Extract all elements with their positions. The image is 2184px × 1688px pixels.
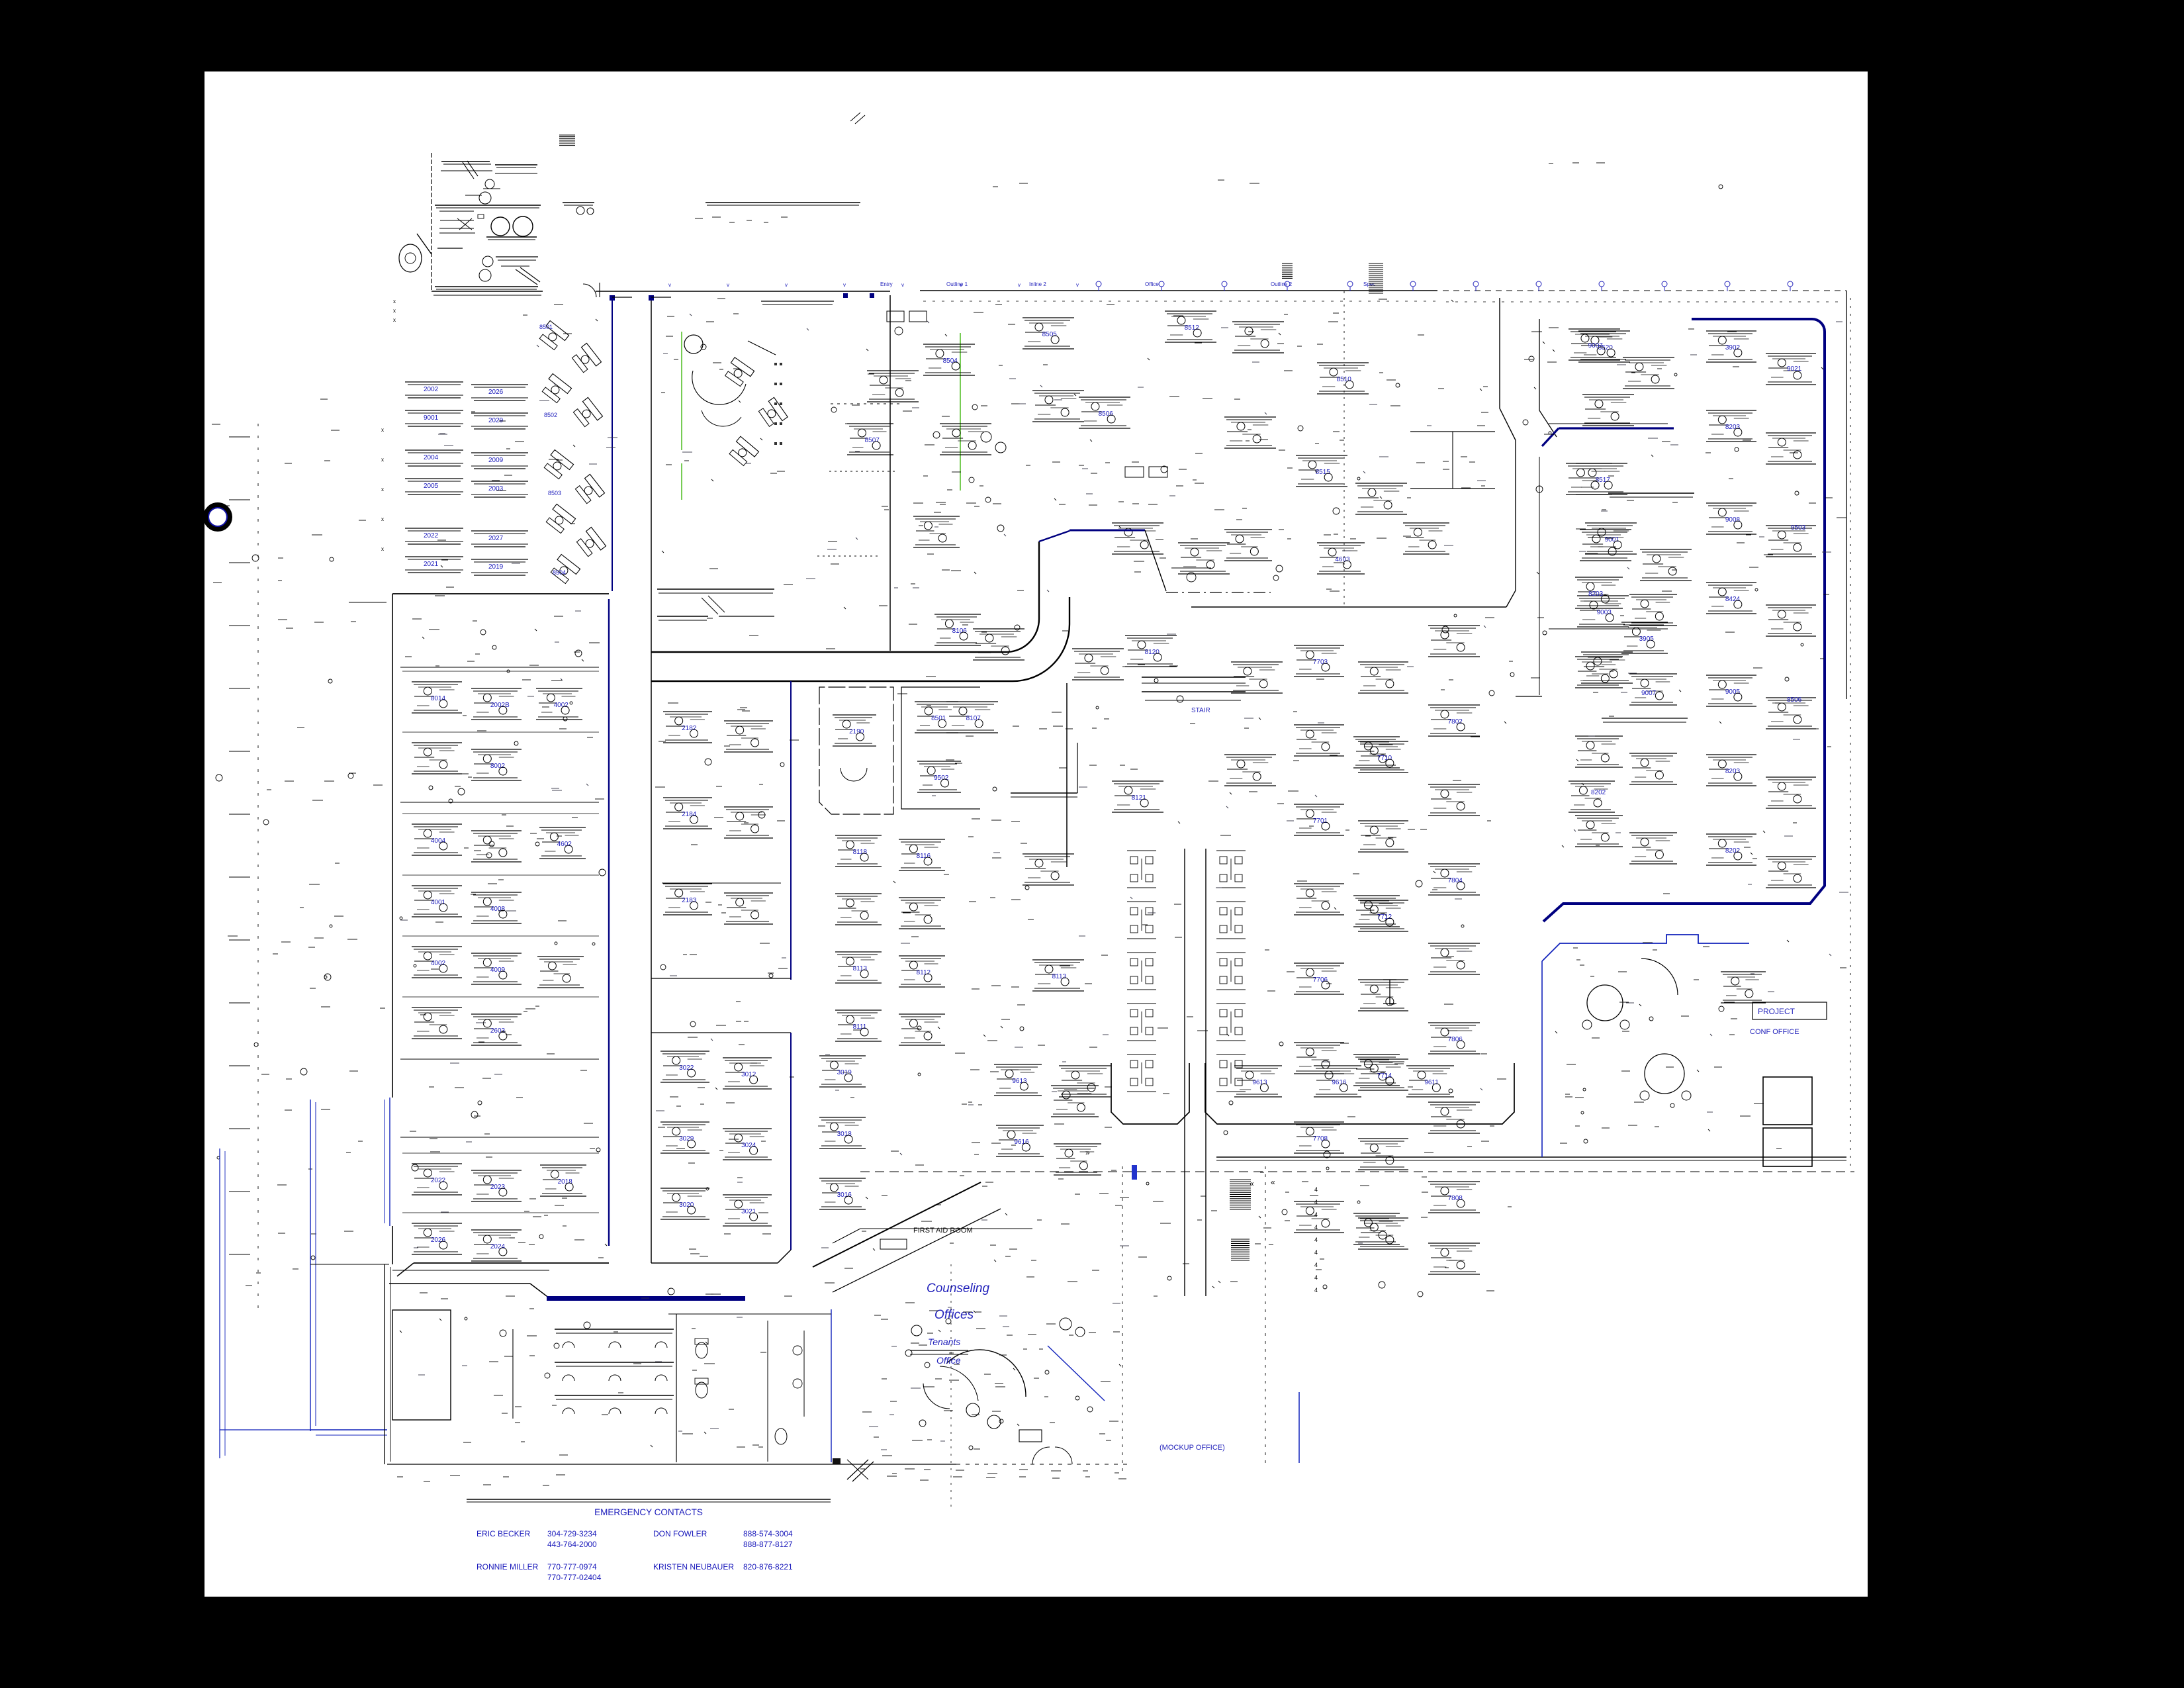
svg-text:Inline 2: Inline 2	[1029, 281, 1046, 287]
svg-text:304-729-3234: 304-729-3234	[547, 1529, 597, 1538]
svg-text:2029: 2029	[488, 417, 504, 424]
svg-text:3902: 3902	[1725, 344, 1741, 352]
svg-text:4: 4	[1314, 1237, 1318, 1243]
svg-text:Outline 2: Outline 2	[1271, 281, 1293, 287]
svg-text:4: 4	[1314, 1249, 1318, 1256]
svg-text:v: v	[843, 282, 846, 288]
svg-text:2009: 2009	[488, 457, 504, 464]
svg-text:9613: 9613	[1012, 1078, 1027, 1085]
svg-text:3020: 3020	[679, 1201, 694, 1209]
svg-text:9613: 9613	[1252, 1079, 1267, 1086]
svg-text:4: 4	[1314, 1224, 1318, 1231]
svg-text:4008: 4008	[490, 906, 506, 913]
svg-text:8505: 8505	[1042, 331, 1058, 338]
svg-text:«: «	[1250, 1179, 1254, 1188]
svg-text:2003: 2003	[488, 485, 504, 492]
svg-text:x: x	[381, 516, 384, 522]
svg-text:STAIR: STAIR	[1191, 707, 1210, 714]
svg-text:4602: 4602	[557, 841, 572, 848]
svg-text:8512: 8512	[1185, 324, 1200, 332]
svg-text:2018: 2018	[558, 1178, 573, 1186]
svg-text:4: 4	[1314, 1262, 1318, 1268]
svg-text:8507: 8507	[865, 437, 880, 444]
svg-text:3029: 3029	[679, 1135, 694, 1143]
svg-text:7703: 7703	[1313, 659, 1328, 666]
svg-text:8107: 8107	[966, 715, 981, 722]
svg-text:9003: 9003	[1597, 609, 1612, 616]
svg-text:8106: 8106	[952, 628, 968, 635]
svg-text:»: »	[1085, 1148, 1090, 1157]
svg-text:4: 4	[1314, 1287, 1318, 1293]
svg-text:8112: 8112	[917, 969, 931, 976]
svg-text:CONF OFFICE: CONF OFFICE	[1750, 1028, 1799, 1036]
svg-text:Tenants: Tenants	[928, 1336, 960, 1347]
svg-text:x: x	[381, 487, 384, 492]
svg-text:7804: 7804	[1448, 877, 1463, 884]
svg-text:x: x	[381, 546, 384, 552]
svg-text:3021: 3021	[741, 1208, 756, 1215]
svg-text:3018: 3018	[837, 1131, 852, 1138]
svg-text:Spec: Spec	[1363, 281, 1375, 287]
svg-text:2184: 2184	[682, 811, 697, 818]
svg-text:v: v	[901, 282, 904, 288]
svg-text:9001: 9001	[1605, 536, 1620, 543]
svg-text:8121: 8121	[1132, 794, 1147, 802]
svg-text:2183: 2183	[682, 897, 697, 904]
svg-text:(MOCKUP OFFICE): (MOCKUP OFFICE)	[1160, 1444, 1225, 1452]
svg-text:2004: 2004	[424, 454, 439, 461]
svg-text:2026: 2026	[431, 1237, 446, 1244]
svg-text:7706: 7706	[1313, 976, 1328, 984]
svg-text:820-876-8221: 820-876-8221	[743, 1562, 793, 1571]
svg-text:7802: 7802	[1448, 718, 1463, 726]
svg-text:7714: 7714	[1377, 1072, 1392, 1080]
svg-text:2019: 2019	[488, 563, 504, 571]
svg-text:888-574-3004: 888-574-3004	[743, 1529, 793, 1538]
svg-text:3022: 3022	[679, 1064, 694, 1072]
svg-text:9007: 9007	[1588, 342, 1604, 350]
svg-text:Entry: Entry	[880, 281, 893, 287]
svg-text:8203: 8203	[1725, 768, 1741, 775]
svg-text:770-777-0974: 770-777-0974	[547, 1562, 597, 1571]
svg-text:8517: 8517	[1596, 477, 1611, 484]
svg-text:8113: 8113	[853, 965, 868, 972]
svg-text:8202: 8202	[1591, 789, 1606, 796]
svg-text:x: x	[393, 308, 396, 314]
svg-text:9005: 9005	[1725, 688, 1741, 696]
svg-text:Office: Office	[1145, 281, 1159, 287]
svg-text:8501: 8501	[539, 324, 553, 330]
svg-text:ERIC BECKER: ERIC BECKER	[477, 1529, 531, 1538]
svg-text:7708: 7708	[1313, 1135, 1328, 1143]
svg-text:9021: 9021	[1787, 365, 1802, 373]
svg-text:Offices: Offices	[934, 1308, 974, 1322]
svg-text:2002: 2002	[424, 386, 439, 393]
svg-text:8502: 8502	[544, 412, 557, 418]
svg-text:4: 4	[1314, 1211, 1318, 1218]
svg-text:8118: 8118	[853, 849, 868, 856]
svg-text:4603: 4603	[1335, 556, 1350, 563]
svg-text:Office: Office	[936, 1355, 961, 1366]
svg-text:8503: 8503	[548, 490, 561, 496]
svg-text:v: v	[1018, 282, 1021, 288]
svg-text:8203: 8203	[1588, 590, 1604, 598]
svg-text:8504: 8504	[943, 357, 958, 365]
svg-text:770-777-02404: 770-777-02404	[547, 1573, 602, 1582]
svg-text:7808: 7808	[1448, 1195, 1463, 1202]
svg-text:Counseling: Counseling	[927, 1282, 989, 1295]
svg-text:8504: 8504	[553, 569, 566, 576]
svg-text:9616: 9616	[1014, 1139, 1029, 1146]
svg-text:7710: 7710	[1377, 755, 1392, 762]
svg-text:8510: 8510	[1337, 376, 1352, 383]
svg-text:v: v	[785, 282, 788, 288]
svg-text:8002: 8002	[490, 763, 506, 770]
svg-text:x: x	[393, 317, 396, 323]
svg-text:2022: 2022	[431, 1177, 446, 1184]
svg-text:EMERGENCY CONTACTS: EMERGENCY CONTACTS	[594, 1507, 703, 1517]
svg-text:2023: 2023	[490, 1184, 506, 1191]
svg-text:9616: 9616	[1332, 1079, 1347, 1086]
svg-text:4: 4	[1314, 1186, 1318, 1193]
svg-text:2021: 2021	[424, 561, 439, 568]
svg-text:443-764-2000: 443-764-2000	[547, 1540, 597, 1549]
svg-text:8116: 8116	[917, 853, 931, 860]
svg-text:8113: 8113	[1052, 973, 1067, 980]
svg-text:RONNIE MILLER: RONNIE MILLER	[477, 1562, 539, 1571]
svg-text:v: v	[1076, 282, 1079, 288]
svg-text:x: x	[393, 299, 396, 305]
svg-text:DON FOWLER: DON FOWLER	[653, 1529, 707, 1538]
svg-text:4: 4	[1314, 1274, 1318, 1281]
svg-text:2026: 2026	[488, 389, 504, 396]
svg-text:FIRST AID ROOM: FIRST AID ROOM	[913, 1227, 973, 1235]
svg-text:8203: 8203	[1725, 424, 1741, 431]
svg-text:7712: 7712	[1377, 914, 1392, 921]
svg-text:9503: 9503	[1791, 524, 1806, 532]
svg-text:9007: 9007	[1641, 690, 1657, 697]
svg-text:9001: 9001	[424, 414, 439, 422]
svg-text:«: «	[1271, 1178, 1275, 1187]
svg-text:4002: 4002	[554, 702, 569, 709]
svg-text:x: x	[381, 427, 384, 433]
svg-text:2022: 2022	[424, 532, 439, 539]
svg-text:8506: 8506	[1099, 410, 1114, 418]
svg-text:Outline 1: Outline 1	[946, 281, 968, 287]
svg-text:3024: 3024	[741, 1142, 756, 1149]
svg-text:4: 4	[1314, 1199, 1318, 1205]
svg-text:v: v	[668, 282, 671, 288]
svg-text:9611: 9611	[1424, 1079, 1439, 1086]
svg-text:2027: 2027	[488, 535, 504, 542]
svg-text:8424: 8424	[1725, 596, 1741, 603]
svg-text:8014: 8014	[431, 695, 446, 702]
svg-text:v: v	[727, 282, 729, 288]
svg-text:3905: 3905	[1639, 635, 1655, 643]
svg-text:888-877-8127: 888-877-8127	[743, 1540, 793, 1549]
svg-text:4002: 4002	[431, 960, 446, 967]
svg-text:3016: 3016	[837, 1192, 852, 1199]
svg-text:8506: 8506	[1787, 696, 1802, 704]
svg-text:x: x	[381, 457, 384, 463]
svg-text:2182: 2182	[682, 725, 697, 732]
svg-text:9008: 9008	[1725, 516, 1741, 524]
svg-text:7701: 7701	[1313, 818, 1328, 825]
svg-text:PROJECT: PROJECT	[1758, 1007, 1796, 1016]
svg-text:3019: 3019	[837, 1069, 852, 1076]
svg-text:4009: 4009	[490, 966, 506, 974]
svg-text:7806: 7806	[1448, 1036, 1463, 1043]
svg-text:3012: 3012	[741, 1071, 756, 1078]
svg-text:8515: 8515	[1316, 469, 1331, 476]
svg-text:8120: 8120	[1145, 649, 1160, 656]
svg-text:2005: 2005	[424, 483, 439, 490]
svg-text:8111: 8111	[853, 1023, 867, 1031]
svg-text:2603: 2603	[490, 1027, 506, 1035]
svg-text:4004: 4004	[431, 837, 446, 845]
svg-text:KRISTEN NEUBAUER: KRISTEN NEUBAUER	[653, 1562, 734, 1571]
svg-text:2024: 2024	[490, 1243, 506, 1250]
svg-text:4001: 4001	[431, 899, 446, 906]
svg-text:8202: 8202	[1725, 847, 1741, 855]
